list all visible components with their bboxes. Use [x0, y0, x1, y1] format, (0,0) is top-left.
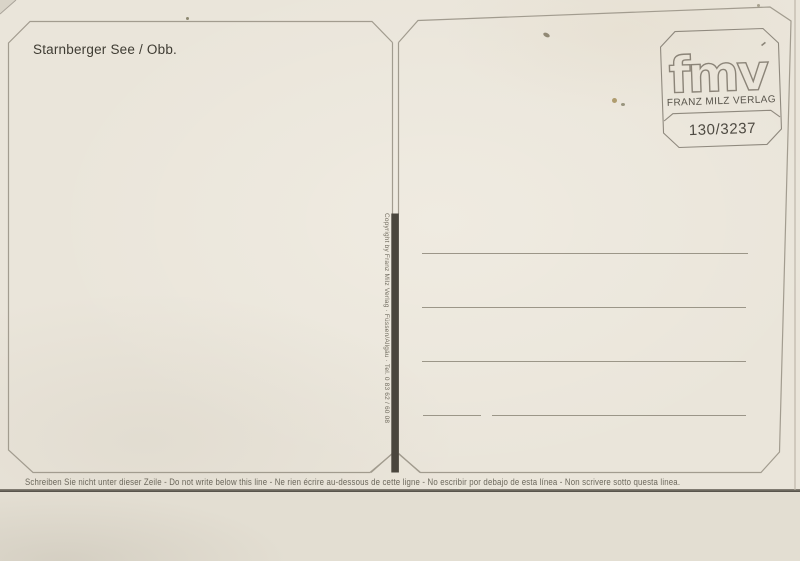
do-not-write-notice: Schreiben Sie nicht unter dieser Zeile -… [25, 477, 680, 487]
publisher-name: FRANZ MILZ VERLAG [662, 94, 780, 109]
address-line-1 [422, 253, 748, 254]
address-line-4-postcode-segment [423, 415, 481, 416]
address-line-3 [422, 361, 746, 362]
address-line-2 [422, 307, 746, 308]
card-order-number: 130/3237 [663, 119, 782, 140]
address-line-4-town-segment [492, 415, 746, 416]
divider-bar [391, 214, 399, 473]
divider-branch-right [399, 454, 420, 473]
copyright-spine-text: Copyright by Franz Milz Verlag · Füssen/… [377, 213, 390, 463]
left-panel-border [9, 22, 393, 473]
postcard-back-scan: fmv Starnberger See / Obb. FRANZ MILZ VE… [0, 0, 800, 561]
stamp-box-content: FRANZ MILZ VERLAG 130/3237 [660, 26, 782, 150]
postcard-title: Starnberger See / Obb. [33, 42, 177, 57]
